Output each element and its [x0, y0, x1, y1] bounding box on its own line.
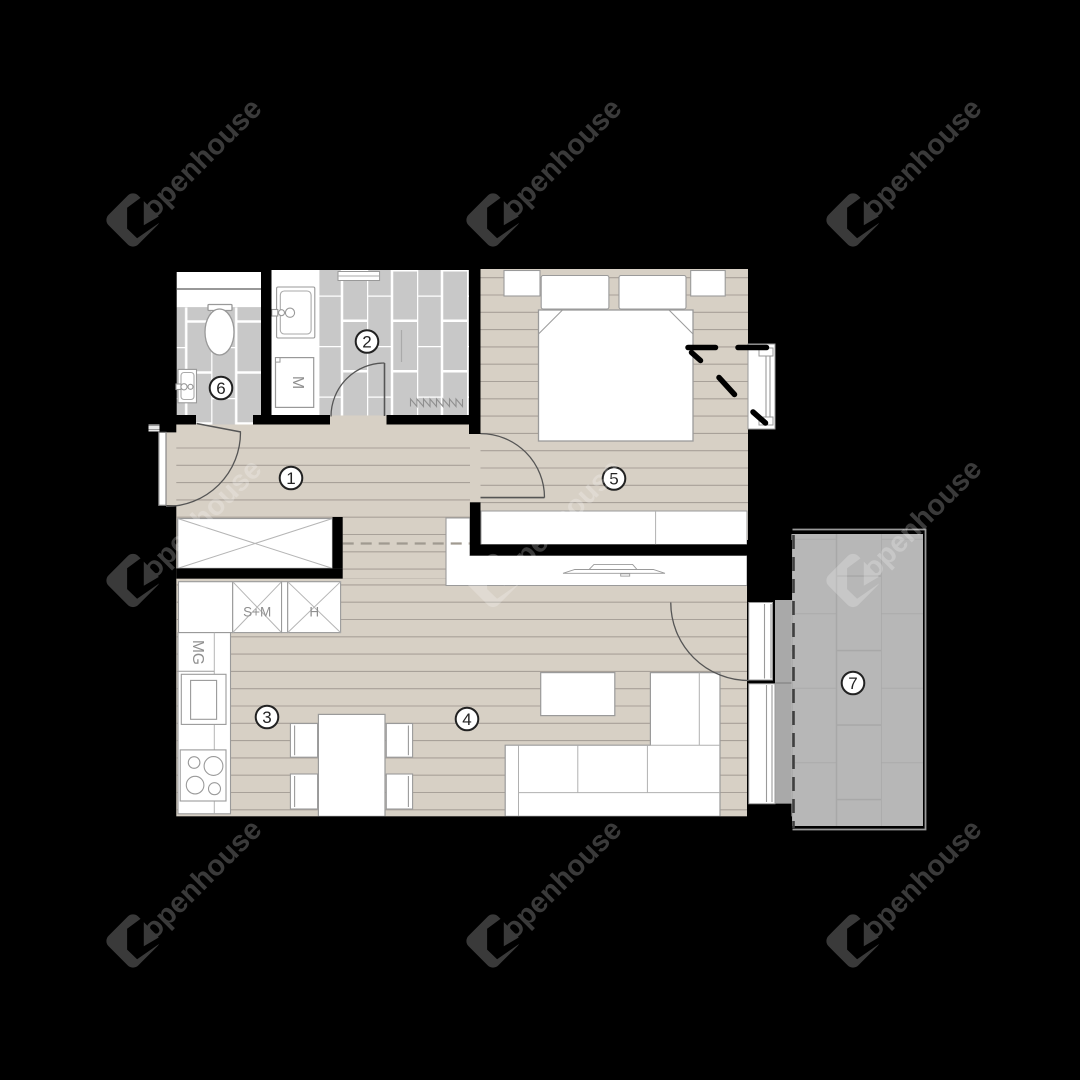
svg-text:6: 6: [216, 379, 225, 398]
svg-text:3: 3: [262, 708, 271, 727]
svg-text:S+M: S+M: [243, 605, 271, 620]
svg-text:7: 7: [848, 674, 857, 693]
svg-text:4: 4: [462, 710, 471, 729]
svg-text:MG: MG: [189, 640, 206, 665]
svg-text:1: 1: [286, 469, 295, 488]
svg-text:H: H: [309, 605, 319, 620]
svg-text:M: M: [289, 376, 306, 389]
svg-text:2: 2: [362, 332, 371, 351]
